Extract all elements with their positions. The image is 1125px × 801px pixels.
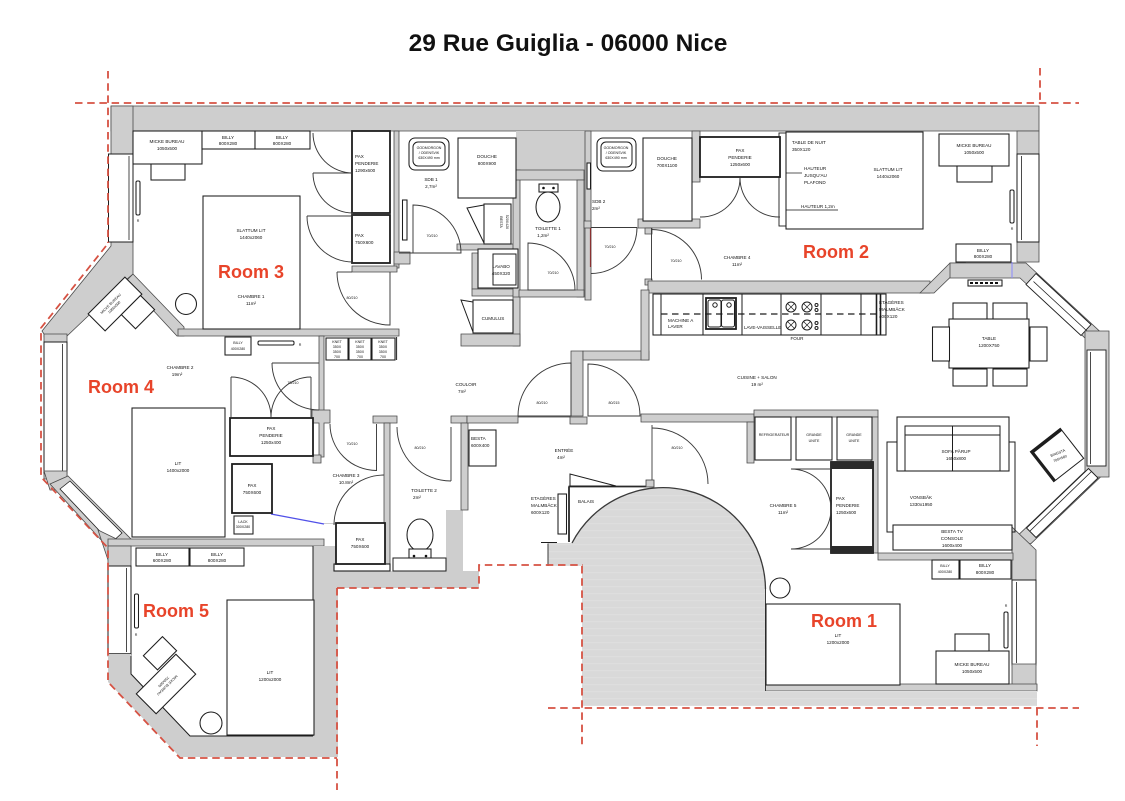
svg-text:400X120: 400X120 [879, 314, 898, 319]
svg-text:750X600: 750X600 [355, 240, 374, 245]
svg-text:700: 700 [380, 355, 386, 359]
svg-text:80/215: 80/215 [609, 401, 620, 405]
svg-text:BESTA: BESTA [499, 216, 503, 228]
svg-text:GODMORGON: GODMORGON [417, 146, 442, 150]
svg-text:Room 2: Room 2 [803, 242, 869, 262]
svg-text:19 m²: 19 m² [751, 382, 763, 387]
svg-text:FOUR: FOUR [790, 336, 804, 341]
svg-text:350X: 350X [333, 345, 342, 349]
svg-text:SDB 2: SDB 2 [592, 199, 606, 204]
svg-text:GODMORGON: GODMORGON [604, 146, 629, 150]
svg-text:CUISINE + SALON: CUISINE + SALON [737, 375, 776, 380]
svg-text:ENTRÉE: ENTRÉE [555, 447, 574, 453]
svg-text:400X280: 400X280 [231, 347, 245, 351]
svg-text:HAUTEUR: HAUTEUR [804, 166, 827, 171]
svg-text:SLATTUM LIT: SLATTUM LIT [873, 167, 902, 172]
svg-text:400X280: 400X280 [938, 570, 952, 574]
svg-text:2m²: 2m² [413, 495, 421, 500]
svg-text:350X: 350X [333, 350, 342, 354]
svg-text:CUMULUS: CUMULUS [482, 316, 505, 321]
svg-text:PAX: PAX [355, 154, 364, 159]
svg-text:80/210: 80/210 [537, 401, 548, 405]
svg-text:1400x2000: 1400x2000 [167, 468, 190, 473]
svg-text:350X120: 350X120 [792, 147, 811, 152]
svg-text:1250x600: 1250x600 [730, 162, 751, 167]
svg-text:CHAMBRE 3: CHAMBRE 3 [333, 473, 360, 478]
svg-text:MACHINE A: MACHINE A [668, 318, 694, 323]
svg-text:11m²: 11m² [246, 301, 257, 306]
svg-text:R: R [299, 343, 302, 347]
svg-text:350X: 350X [379, 345, 388, 349]
svg-text:LIT: LIT [835, 633, 842, 638]
svg-text:UNITE: UNITE [809, 439, 820, 443]
svg-text:TOILETTE 2: TOILETTE 2 [411, 488, 437, 493]
svg-text:2m²: 2m² [592, 206, 600, 211]
svg-text:4m²: 4m² [557, 455, 565, 460]
svg-text:800X280: 800X280 [219, 141, 238, 146]
svg-text:80/210: 80/210 [347, 296, 358, 300]
svg-text:630X490 mm: 630X490 mm [418, 156, 439, 160]
svg-text:29 Rue Guiglia - 06000 Nice: 29 Rue Guiglia - 06000 Nice [409, 30, 728, 57]
svg-text:1250x600: 1250x600 [836, 510, 857, 515]
svg-text:70/210: 70/210 [288, 381, 299, 385]
svg-text:630X490 mm: 630X490 mm [605, 156, 626, 160]
svg-text:1330x1950: 1330x1950 [910, 502, 933, 507]
svg-text:800X280: 800X280 [976, 570, 995, 575]
svg-text:70/210: 70/210 [427, 234, 438, 238]
svg-text:PAX: PAX [267, 426, 276, 431]
svg-text:600X280: 600X280 [153, 558, 172, 563]
svg-text:11m²: 11m² [732, 262, 743, 267]
svg-text:Room 1: Room 1 [811, 611, 877, 631]
svg-text:GRANDE: GRANDE [806, 433, 822, 437]
svg-text:KNET: KNET [332, 340, 342, 344]
svg-text:7m²: 7m² [458, 389, 466, 394]
svg-text:DOUCHE: DOUCHE [477, 154, 497, 159]
svg-text:Room 3: Room 3 [218, 262, 284, 282]
svg-text:PAX: PAX [355, 233, 364, 238]
svg-text:BILLY: BILLY [211, 552, 223, 557]
svg-text:2,7m²: 2,7m² [425, 184, 437, 189]
svg-text:LAVABO: LAVABO [492, 264, 510, 269]
svg-text:PENDERIE: PENDERIE [836, 503, 860, 508]
svg-text:/ ODENSVIK: / ODENSVIK [419, 151, 440, 155]
svg-text:KNET: KNET [378, 340, 388, 344]
svg-text:BILLY: BILLY [977, 248, 989, 253]
svg-text:11m²: 11m² [778, 510, 789, 515]
svg-text:350X: 350X [356, 350, 365, 354]
svg-text:70/210: 70/210 [671, 259, 682, 263]
svg-text:LIT: LIT [267, 670, 274, 675]
svg-text:Room 5: Room 5 [143, 601, 209, 621]
svg-text:BILLY: BILLY [940, 564, 950, 568]
svg-text:19m²: 19m² [172, 372, 183, 377]
svg-text:PAX: PAX [836, 496, 845, 501]
svg-text:750X600: 750X600 [243, 490, 262, 495]
svg-text:CHAMBRE 1: CHAMBRE 1 [238, 294, 265, 299]
svg-text:DOUCHE: DOUCHE [657, 156, 677, 161]
svg-text:PAX: PAX [356, 537, 365, 542]
svg-text:SOFA PÄRUP: SOFA PÄRUP [941, 448, 970, 454]
svg-text:800X280: 800X280 [208, 558, 227, 563]
svg-text:1050x500: 1050x500 [157, 146, 178, 151]
svg-text:70/210: 70/210 [605, 245, 616, 249]
svg-text:1250x400: 1250x400 [261, 440, 282, 445]
svg-text:PLAFOND: PLAFOND [804, 180, 826, 185]
svg-text:TABLE: TABLE [982, 336, 996, 341]
svg-text:ETAGÈRES: ETAGÈRES [531, 495, 556, 501]
svg-text:800X900: 800X900 [478, 161, 497, 166]
svg-text:KNET: KNET [355, 340, 365, 344]
svg-text:1,2m²: 1,2m² [537, 233, 549, 238]
svg-text:PENDERIE: PENDERIE [355, 161, 379, 166]
svg-text:HAUTEUR 1,2m: HAUTEUR 1,2m [801, 204, 835, 209]
svg-text:600X400: 600X400 [471, 443, 490, 448]
svg-text:1050x500: 1050x500 [962, 669, 983, 674]
svg-text:PENDERIE: PENDERIE [728, 155, 752, 160]
svg-text:1440x2060: 1440x2060 [877, 174, 900, 179]
svg-text:700X1100: 700X1100 [657, 163, 678, 168]
svg-text:1200x2000: 1200x2000 [827, 640, 850, 645]
svg-text:COULOIR: COULOIR [456, 382, 478, 387]
svg-text:CONSOLE: CONSOLE [941, 536, 963, 541]
svg-text:70/210: 70/210 [347, 442, 358, 446]
svg-text:350X: 350X [356, 345, 365, 349]
svg-text:MICKE BUREAU: MICKE BUREAU [150, 139, 185, 144]
svg-text:700: 700 [357, 355, 363, 359]
svg-text:800X280: 800X280 [273, 141, 292, 146]
svg-text:BILLY: BILLY [276, 135, 288, 140]
svg-text:SLATTUM LIT: SLATTUM LIT [236, 228, 265, 233]
svg-text:750X600: 750X600 [351, 544, 370, 549]
svg-text:PAX: PAX [736, 148, 745, 153]
svg-text:LAVE-VAISSELLE: LAVE-VAISSELLE [744, 325, 781, 330]
svg-text:GRANDE: GRANDE [846, 433, 862, 437]
svg-text:MALMBÄCK: MALMBÄCK [531, 502, 558, 508]
svg-text:MALMBÄCK: MALMBÄCK [879, 306, 906, 312]
svg-text:70/210: 70/210 [548, 271, 559, 275]
svg-text:REFRIGERATEUR: REFRIGERATEUR [759, 433, 790, 437]
svg-text:1200x2000: 1200x2000 [259, 677, 282, 682]
svg-text:1650x800: 1650x800 [946, 456, 967, 461]
svg-text:LIT: LIT [175, 461, 182, 466]
svg-text:VONSBÄK: VONSBÄK [910, 494, 933, 500]
svg-text:BESTA TV: BESTA TV [941, 529, 963, 534]
svg-text:MICKE BUREAU: MICKE BUREAU [955, 662, 990, 667]
svg-text:ETAGÈRES: ETAGÈRES [879, 299, 904, 305]
svg-text:10.8m²: 10.8m² [339, 480, 354, 485]
svg-text:80/210: 80/210 [415, 446, 426, 450]
svg-text:520X420: 520X420 [505, 215, 509, 229]
svg-text:SDB 1: SDB 1 [424, 177, 438, 182]
svg-text:UNITE: UNITE [849, 439, 860, 443]
svg-text:1600x400: 1600x400 [942, 543, 963, 548]
svg-text:R: R [137, 219, 140, 223]
svg-text:700: 700 [334, 355, 340, 359]
svg-text:Room 4: Room 4 [88, 377, 154, 397]
svg-text:450X320: 450X320 [492, 271, 511, 276]
svg-text:JUSQU'AU: JUSQU'AU [804, 173, 827, 178]
svg-text:CHAMBRE 5: CHAMBRE 5 [770, 503, 797, 508]
svg-text:/ ODENSVIK: / ODENSVIK [606, 151, 627, 155]
svg-text:R: R [1005, 604, 1008, 608]
svg-text:R: R [1011, 227, 1014, 231]
svg-text:LACK: LACK [238, 520, 248, 524]
svg-text:BILLY: BILLY [222, 135, 234, 140]
svg-text:TABLE DE NUIT: TABLE DE NUIT [792, 140, 826, 145]
svg-text:1200X750: 1200X750 [979, 343, 1000, 348]
svg-text:80/210: 80/210 [672, 446, 683, 450]
svg-text:1290x600: 1290x600 [355, 168, 376, 173]
svg-text:CHAMBRE 2: CHAMBRE 2 [167, 365, 194, 370]
svg-text:300X280: 300X280 [236, 525, 250, 529]
svg-text:600X120: 600X120 [531, 510, 550, 515]
svg-text:R: R [135, 633, 138, 637]
svg-text:LAVER: LAVER [668, 324, 683, 329]
svg-text:1440x2060: 1440x2060 [240, 235, 263, 240]
svg-text:BESTA: BESTA [471, 436, 487, 441]
svg-text:BILLY: BILLY [979, 563, 991, 568]
svg-text:PAX: PAX [248, 483, 257, 488]
svg-text:BALAIS: BALAIS [578, 499, 594, 504]
svg-text:1050x500: 1050x500 [964, 150, 985, 155]
svg-text:CHAMBRE 4: CHAMBRE 4 [724, 255, 751, 260]
svg-text:800X280: 800X280 [974, 254, 993, 259]
svg-text:350X: 350X [379, 350, 388, 354]
svg-text:MICKE BUREAU: MICKE BUREAU [957, 143, 992, 148]
svg-text:BILLY: BILLY [156, 552, 168, 557]
svg-text:BILLY: BILLY [233, 341, 243, 345]
svg-text:TOILETTE 1: TOILETTE 1 [535, 226, 561, 231]
svg-text:PENDERIE: PENDERIE [259, 433, 283, 438]
